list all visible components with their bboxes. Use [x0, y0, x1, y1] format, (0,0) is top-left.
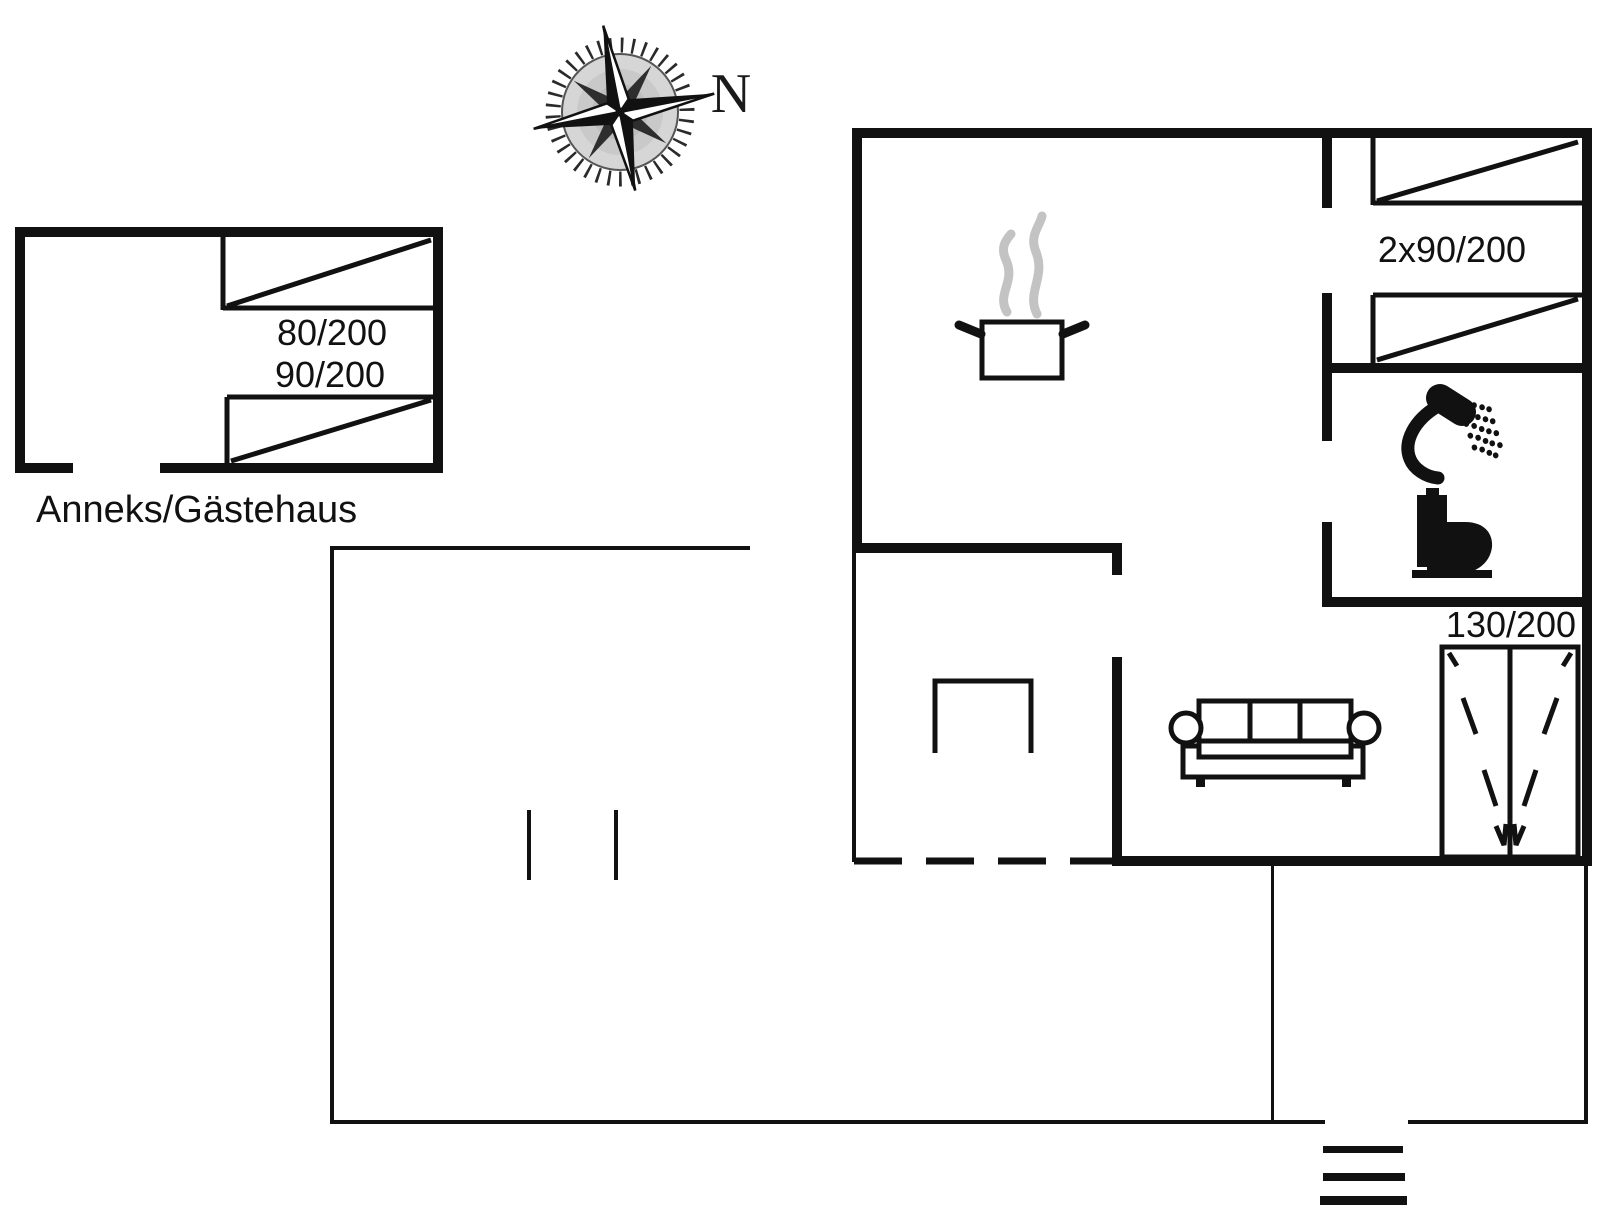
sofa-icon [1171, 701, 1379, 787]
wardrobe-size-label: 130/200 [1446, 604, 1576, 645]
annex-title: Anneks/Gästehaus [36, 489, 357, 531]
table-icon [935, 681, 1031, 753]
bedroom-bed-1 [1373, 138, 1582, 205]
glass-front-line [852, 553, 856, 862]
terrace-posts [527, 810, 618, 880]
annex-bed-size-1: 80/200 [277, 312, 387, 353]
annex-bed-1 [223, 237, 433, 310]
shower-icon [1408, 398, 1502, 478]
compass-rose: N [517, 7, 751, 207]
steam-icon [1003, 216, 1042, 314]
annex: 80/200 90/200 Anneks/Gästehaus [15, 227, 443, 531]
annex-bed-2 [227, 397, 433, 463]
toilet-icon [1412, 488, 1492, 578]
annex-bed-size-2: 90/200 [275, 354, 385, 395]
terrace-outline [330, 546, 1588, 1124]
floor-plan: N 80/200 90/200 Anneks/Gästehaus [0, 0, 1606, 1205]
entrance-steps-icon [1320, 1146, 1407, 1205]
north-label: N [711, 63, 751, 125]
bedroom-bed-2 [1373, 295, 1582, 363]
wardrobe-icon [1442, 647, 1578, 857]
pot-icon [959, 322, 1085, 378]
bedroom-bed-size-label: 2x90/200 [1378, 229, 1526, 270]
